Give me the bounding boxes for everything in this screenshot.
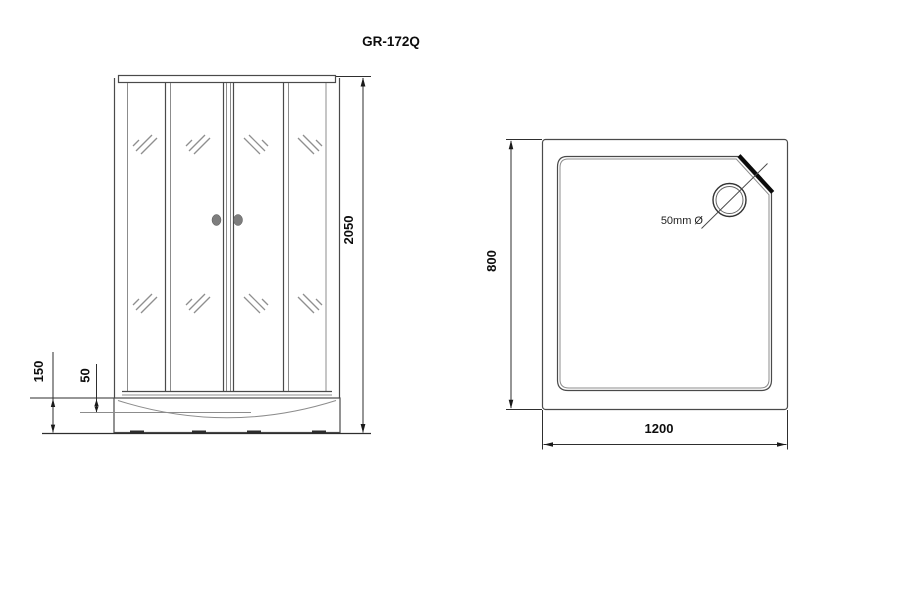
depth-dim-label: 800: [484, 250, 499, 272]
top-view: 50mm Ø 800 1200: [484, 140, 788, 450]
drawing-title: GR-172Q: [362, 34, 420, 49]
door-handle-left: [212, 215, 221, 226]
front-view: 2050 150 50: [30, 76, 371, 434]
basin-depth-dim-label: 50: [78, 368, 93, 382]
top-rail: [119, 76, 336, 83]
height-dim-label: 2050: [341, 216, 356, 245]
drain-leader-line: [702, 164, 768, 229]
shower-cabin-technical-drawing: GR-172Q: [0, 0, 907, 596]
dim-height-2050: 2050: [336, 77, 371, 434]
door-handle-right: [234, 215, 243, 226]
dim-tray-height-150: 150: [30, 352, 114, 433]
dim-depth-800: 800: [484, 140, 542, 410]
drain-hole: [713, 184, 746, 217]
glass-reflection-marks: [133, 135, 322, 313]
drain-diameter-label: 50mm Ø: [661, 215, 704, 227]
dim-basin-depth-50: 50: [78, 364, 252, 413]
dim-width-1200: 1200: [543, 410, 788, 450]
width-dim-label: 1200: [645, 421, 674, 436]
frame-lines: [115, 78, 340, 398]
drawing-canvas: GR-172Q: [0, 0, 907, 596]
tray-height-dim-label: 150: [31, 361, 46, 383]
shower-tray-front: [114, 398, 340, 433]
